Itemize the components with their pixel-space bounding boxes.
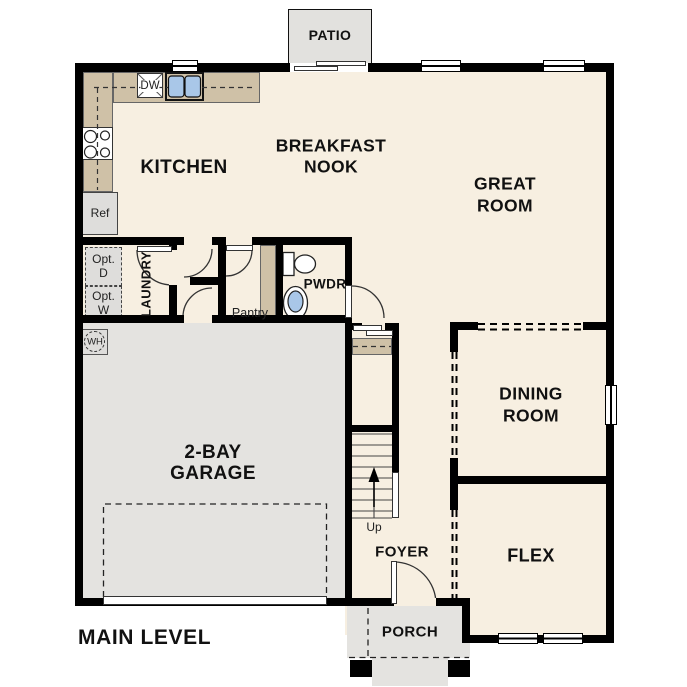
wall-right [606,63,614,643]
label-dw: DW [140,80,159,92]
wall-dining-stub-top [450,322,458,352]
label-up: Up [366,520,381,534]
room-label-porch: PORCH [382,624,438,641]
wall-pantry-left [218,245,226,323]
room-label-great-2: ROOM [477,196,533,217]
label-wh: WH [87,337,103,348]
garage-door-arc [183,288,212,317]
hall-door-arc [184,249,212,277]
wall-greatroom-b [583,322,614,330]
stair-rail [392,472,399,518]
dining-window [605,385,617,425]
garage-door-clearance [104,504,327,597]
hall-doorway [184,237,212,245]
room-label-pantry: Pantry [232,306,268,320]
room-label-dining-1: DINING [499,384,563,405]
pantry-doorway [226,237,252,245]
room-label-flex: FLEX [507,546,555,567]
room-label-great-1: GREAT [474,174,536,195]
plan-title: MAIN LEVEL [78,626,211,650]
up-arrow [369,467,380,507]
wall-closet-bottom [345,425,399,432]
floorplan: Opt. D Opt. W [0,0,687,687]
flex-window-2 [543,633,583,644]
wall-garage-top [75,315,352,323]
pantry-door [226,245,253,251]
pantry-door-arc [226,250,252,276]
room-label-laundry: LAUNDRY [139,251,154,317]
front-doorway [394,598,436,606]
label-ref: Ref [91,206,110,220]
wall-powder-left [276,237,283,323]
kitchen-window [172,60,198,72]
closet-bypass-door-2 [366,330,393,336]
flex-window-1 [498,633,538,644]
wall-kitchen-hall [75,237,352,245]
powder-door-arc [352,286,384,318]
patio-slider-panel-1 [294,66,338,71]
room-label-garage-1: 2-BAY [184,442,241,464]
porch-post-left [350,660,372,677]
room-label-breakfast-1: BREAKFAST [276,136,387,157]
room-label-dining-2: ROOM [503,406,559,427]
kitchen-sink-basins [169,76,201,97]
patio-slider-panel-2 [316,61,366,66]
toilet [283,253,316,276]
garage-hall-doorway [184,315,212,323]
wall-stair-right [392,323,399,472]
room-label-patio: PATIO [309,27,352,43]
wall-dining-flex [450,476,614,484]
room-label-powder: PWDR [304,277,347,292]
room-label-breakfast-2: NOOK [304,157,358,178]
wall-garage-right [345,315,352,606]
garage-door [103,596,327,605]
laundry-doorway [169,250,177,285]
porch-post-right [448,660,470,677]
greatroom-window-1 [421,60,461,72]
wall-flex-bottom [462,635,614,643]
front-door [391,561,397,604]
greatroom-window-2 [543,60,585,72]
wall-left [75,63,83,606]
room-label-kitchen: KITCHEN [140,157,227,179]
wall-dining-stub-bottom [450,458,458,510]
wall-closet-top-b [385,323,399,330]
room-label-garage-2: GARAGE [170,463,256,485]
room-label-foyer: FOYER [375,544,429,561]
